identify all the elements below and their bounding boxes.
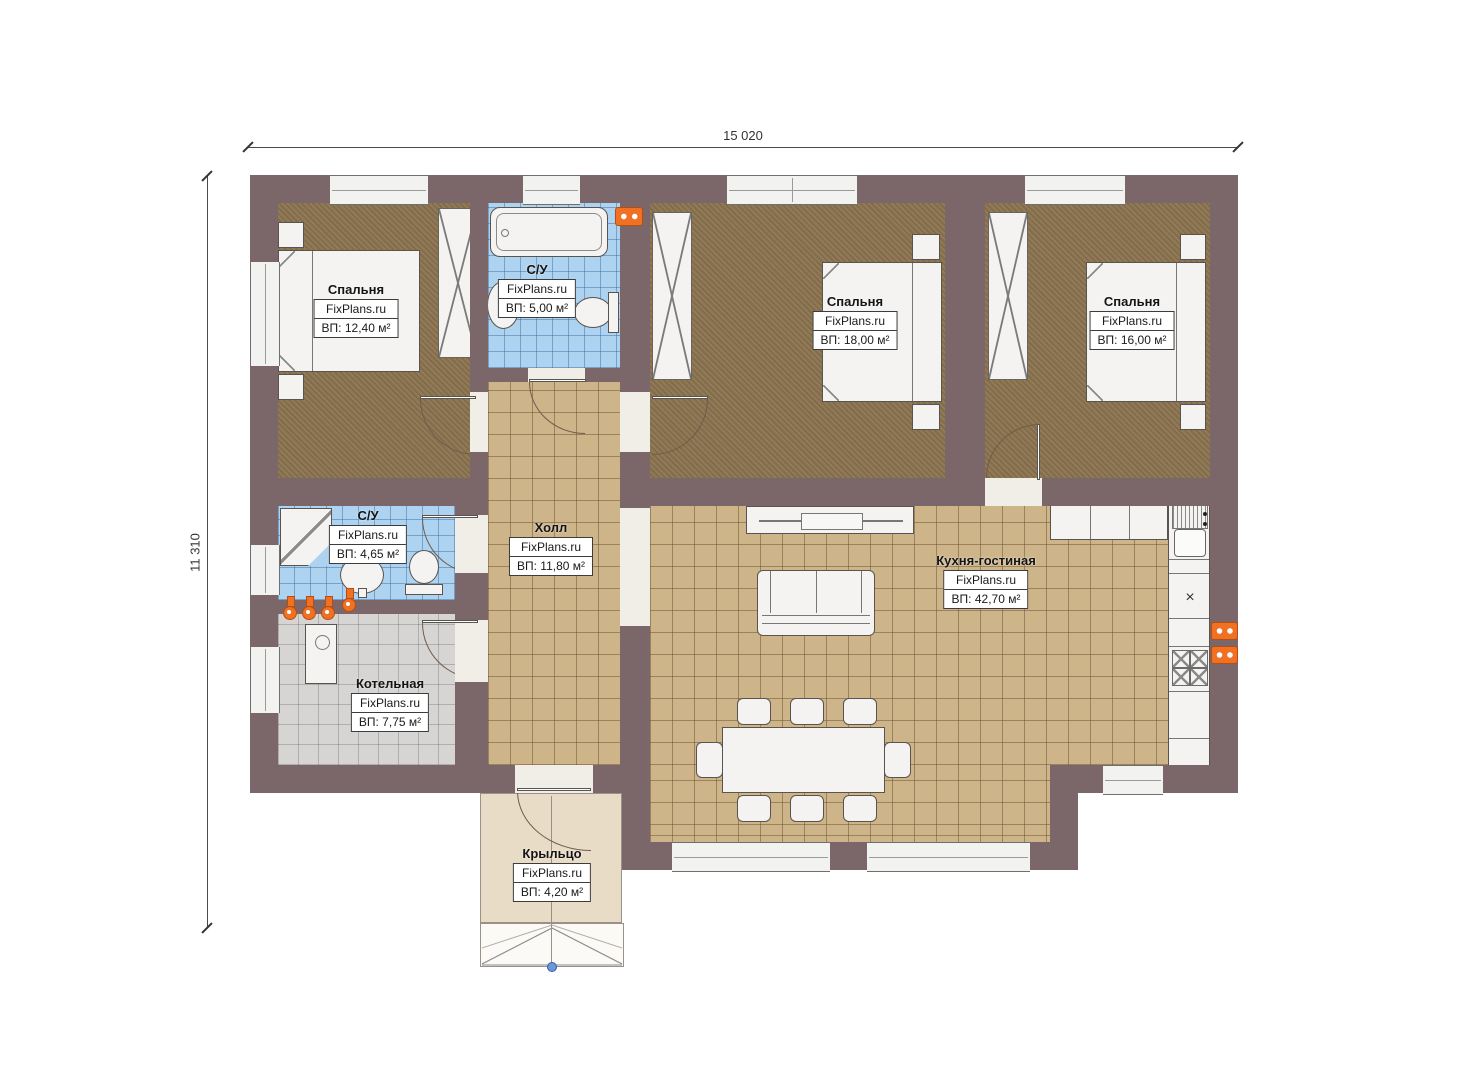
dishwasher-icon: × — [1169, 583, 1211, 613]
room-watermark: FixPlans.ru — [945, 571, 1028, 590]
shower-icon — [280, 508, 332, 566]
room-info-box: FixPlans.ru ВП: 18,00 м² — [813, 311, 898, 350]
nightstand-icon — [278, 222, 304, 248]
room-watermark: FixPlans.ru — [1091, 312, 1174, 331]
window-kitchen-southeast — [1103, 765, 1163, 795]
porch-steps — [480, 923, 624, 967]
door-leaf-bedroom-2 — [652, 396, 708, 399]
wall-hall-right — [620, 203, 650, 793]
chair-icon — [843, 698, 877, 725]
room-area: ВП: 18,00 м² — [814, 331, 897, 349]
room-label-kitchen-living: Кухня-гостиная FixPlans.ru ВП: 42,70 м² — [936, 553, 1036, 609]
kitchen-sink-icon — [1174, 529, 1206, 557]
door-leaf-bedroom-1 — [420, 396, 476, 399]
sofa-icon — [757, 570, 875, 636]
opening-hall-kitchen — [620, 508, 650, 626]
radiator-icon — [1211, 646, 1238, 664]
chair-icon — [737, 698, 771, 725]
room-title: Крыльцо — [522, 846, 581, 861]
wall-bedroom2-bedroom3 — [945, 203, 985, 478]
door-leaf-bedroom-3 — [1037, 424, 1040, 480]
window-bedroom-1 — [330, 175, 428, 205]
room-title: Спальня — [328, 282, 384, 297]
wardrobe-icon-bedroom-3 — [988, 212, 1028, 380]
room-watermark: FixPlans.ru — [352, 694, 428, 713]
toilet-bowl-icon — [574, 297, 612, 328]
wall-right — [1210, 175, 1238, 793]
chair-icon — [843, 795, 877, 822]
room-title: Котельная — [356, 676, 424, 691]
room-watermark: FixPlans.ru — [315, 300, 398, 319]
room-label-boiler: Котельная FixPlans.ru ВП: 7,75 м² — [351, 676, 429, 732]
nightstand-icon — [278, 374, 304, 400]
room-label-bathroom-top: С/У FixPlans.ru ВП: 5,00 м² — [498, 262, 576, 318]
washing-machine-icon — [615, 207, 643, 226]
room-watermark: FixPlans.ru — [514, 864, 590, 883]
window-left-boiler — [250, 647, 280, 713]
door-gap-boiler — [455, 620, 488, 682]
valve-icon — [342, 588, 356, 614]
wall-middle-right — [650, 478, 1210, 506]
valve-icon — [321, 596, 335, 622]
dimension-line-left — [207, 176, 208, 928]
room-watermark: FixPlans.ru — [499, 280, 575, 299]
window-kitchen-south-2 — [867, 842, 1030, 872]
room-title: Спальня — [1104, 294, 1160, 309]
room-watermark: FixPlans.ru — [510, 538, 592, 557]
tap-dot — [1203, 512, 1207, 516]
room-label-bedroom-1: Спальня FixPlans.ru ВП: 12,40 м² — [314, 282, 399, 338]
stove-burner-icon — [1190, 668, 1208, 686]
nightstand-icon — [1180, 234, 1206, 260]
porch-marker-dot — [547, 962, 557, 972]
window-bedroom-3 — [1025, 175, 1125, 205]
room-info-box: FixPlans.ru ВП: 7,75 м² — [351, 693, 429, 732]
room-area: ВП: 4,65 м² — [330, 545, 406, 563]
room-area: ВП: 7,75 м² — [352, 713, 428, 731]
room-info-box: FixPlans.ru ВП: 4,20 м² — [513, 863, 591, 902]
room-area: ВП: 5,00 м² — [499, 299, 575, 317]
wall-extension-right — [1050, 765, 1078, 870]
window-bathroom-top — [523, 175, 580, 205]
room-title: С/У — [526, 262, 547, 277]
nightstand-icon — [1180, 404, 1206, 430]
room-info-box: FixPlans.ru ВП: 11,80 м² — [509, 537, 593, 576]
tap-dot — [1203, 522, 1207, 526]
chair-icon — [884, 742, 911, 778]
radiator-icon — [1211, 622, 1238, 640]
room-area: ВП: 11,80 м² — [510, 557, 592, 575]
room-info-box: FixPlans.ru ВП: 12,40 м² — [314, 299, 399, 338]
wardrobe-icon-bedroom-2 — [652, 212, 692, 380]
room-area: ВП: 12,40 м² — [315, 319, 398, 337]
door-gap-bedroom-1 — [470, 392, 488, 452]
door-gap-bathroom-mid — [455, 515, 488, 573]
dining-table-icon — [722, 727, 885, 793]
toilet-tank-icon — [608, 292, 619, 333]
stove-burner-icon — [1172, 650, 1190, 668]
window-kitchen-south-1 — [672, 842, 830, 872]
room-title: Холл — [535, 520, 568, 535]
door-leaf-boiler — [422, 620, 478, 623]
room-title: Спальня — [827, 294, 883, 309]
room-title: С/У — [357, 508, 378, 523]
room-label-bathroom-mid: С/У FixPlans.ru ВП: 4,65 м² — [329, 508, 407, 564]
room-area: ВП: 4,20 м² — [514, 883, 590, 901]
room-title: Кухня-гостиная — [936, 553, 1036, 568]
door-leaf-porch — [517, 788, 591, 791]
chair-icon — [790, 698, 824, 725]
dimension-height-label: 11 310 — [188, 508, 203, 598]
stove-burner-icon — [1172, 668, 1190, 686]
chair-icon — [737, 795, 771, 822]
room-area: ВП: 16,00 м² — [1091, 331, 1174, 349]
room-info-box: FixPlans.ru ВП: 4,65 м² — [329, 525, 407, 564]
valve-icon — [283, 596, 297, 622]
wall-middle-left — [278, 478, 455, 506]
room-info-box: FixPlans.ru ВП: 16,00 м² — [1090, 311, 1175, 350]
kitchen-counter-top — [1050, 504, 1168, 540]
tv-console-icon — [746, 506, 914, 534]
stove-burner-icon — [1190, 650, 1208, 668]
bathtub-icon — [490, 207, 608, 257]
room-label-porch: Крыльцо FixPlans.ru ВП: 4,20 м² — [513, 846, 591, 902]
toilet-tank-icon — [405, 584, 443, 595]
valve-icon — [302, 596, 316, 622]
chair-icon — [790, 795, 824, 822]
door-leaf-bathroom-mid — [422, 515, 478, 518]
window-left-bathroom-mid — [250, 545, 280, 595]
window-bedroom-2 — [727, 175, 857, 205]
room-watermark: FixPlans.ru — [814, 312, 897, 331]
door-gap-bedroom-3 — [985, 478, 1042, 506]
boiler-icon — [305, 624, 337, 684]
sink-pedestal-icon — [358, 588, 367, 598]
toilet-bowl-icon — [409, 550, 439, 584]
room-watermark: FixPlans.ru — [330, 526, 406, 545]
room-label-bedroom-3: Спальня FixPlans.ru ВП: 16,00 м² — [1090, 294, 1175, 350]
room-info-box: FixPlans.ru ВП: 42,70 м² — [944, 570, 1029, 609]
kitchen-counter-right: × — [1168, 496, 1210, 782]
window-left-bedroom-1 — [250, 262, 280, 366]
dimension-width-label: 15 020 — [698, 128, 788, 143]
room-area: ВП: 42,70 м² — [945, 590, 1028, 608]
nightstand-icon — [912, 234, 940, 260]
door-gap-bedroom-2 — [620, 392, 650, 452]
dimension-line-top — [248, 147, 1238, 148]
room-info-box: FixPlans.ru ВП: 5,00 м² — [498, 279, 576, 318]
chair-icon — [696, 742, 723, 778]
room-label-bedroom-2: Спальня FixPlans.ru ВП: 18,00 м² — [813, 294, 898, 350]
floor-plan-canvas: 15 020 11 310 — [0, 0, 1474, 1080]
door-leaf-bathroom-top — [529, 379, 586, 382]
room-label-hall: Холл FixPlans.ru ВП: 11,80 м² — [509, 520, 593, 576]
nightstand-icon — [912, 404, 940, 430]
